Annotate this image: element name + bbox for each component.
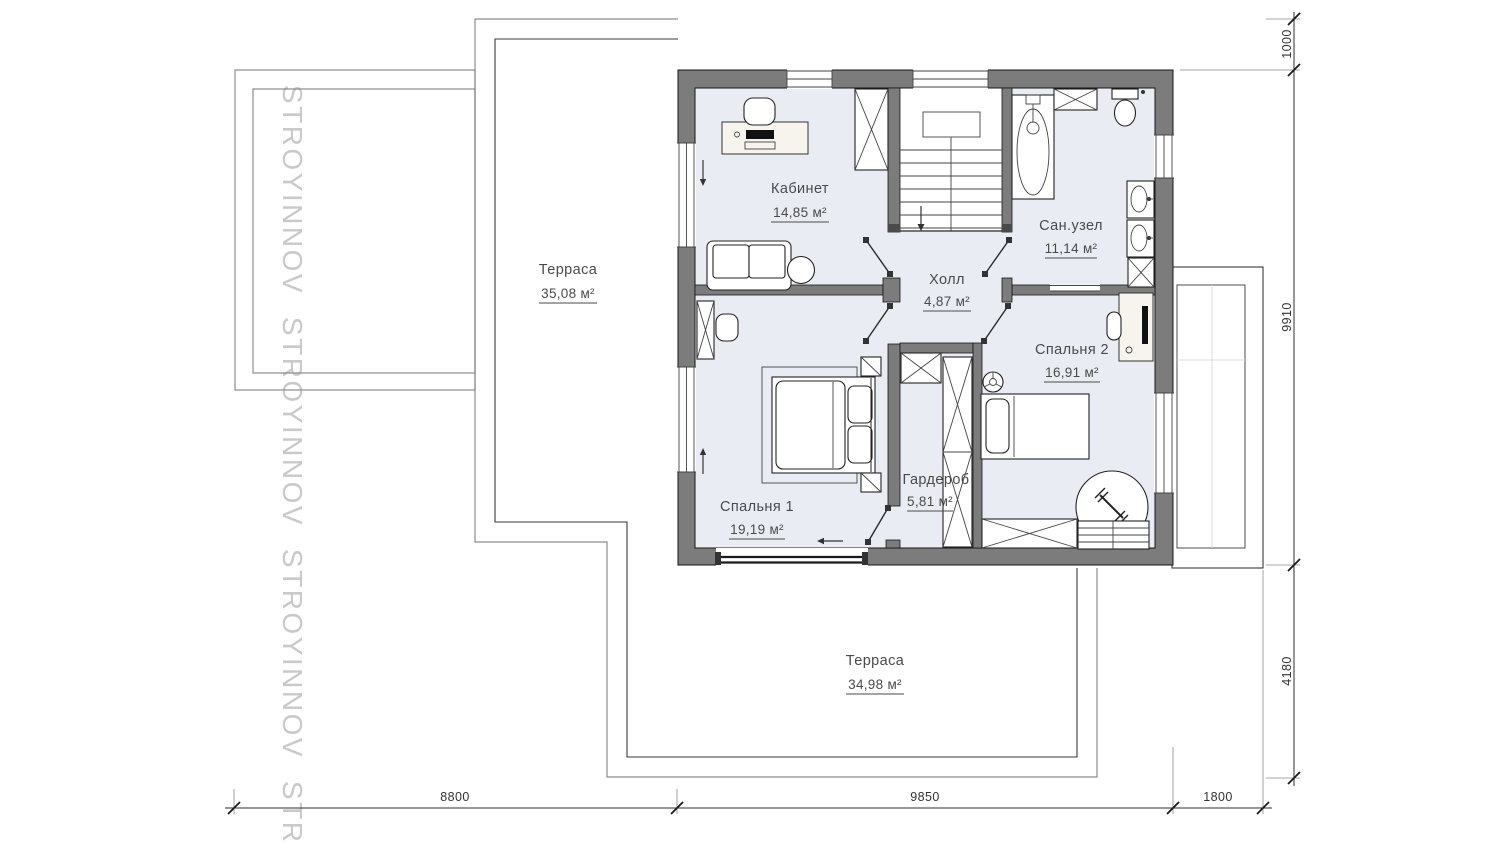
desk-symbol	[722, 122, 808, 154]
nightstand-symbol	[861, 357, 881, 376]
wall-cap	[888, 224, 900, 232]
pillow-symbol	[986, 399, 1009, 453]
floor-plan-canvas: STROYINNOV STROYINNOV STROYINNOV STROYIN…	[0, 0, 1500, 844]
office-chair-symbol	[1107, 312, 1121, 340]
wall-office-stairs	[888, 88, 900, 232]
dimension-label-9850: 9850	[910, 790, 939, 804]
watermark: STROYINNOV STROYINNOV STROYINNOV STROYIN…	[277, 85, 308, 844]
nightstand-symbol	[861, 473, 881, 492]
wall-bedroom1-wardrobe	[888, 344, 900, 506]
window-bathroom-right	[1154, 135, 1174, 178]
stool-symbol	[716, 314, 738, 341]
window-office-left	[677, 143, 696, 247]
bathroom-threshold	[1050, 285, 1100, 292]
room-area: 35,08 м²	[541, 286, 595, 301]
pillow-symbol	[848, 386, 872, 423]
dimension-label-9910: 9910	[1280, 302, 1294, 331]
window-bedroom2-right	[1154, 393, 1174, 493]
room-area: 14,85 м²	[773, 205, 827, 220]
balcony	[1172, 267, 1263, 568]
room-area: 34,98 м²	[848, 677, 902, 692]
room-area: 4,87 м²	[924, 294, 970, 309]
building	[677, 69, 1174, 566]
bench-rack-symbol	[1078, 521, 1149, 549]
bathtub-symbol	[1012, 95, 1054, 199]
watermark-text: STROYINNOV	[277, 85, 308, 295]
double-bed-symbol	[772, 377, 875, 473]
room-area: 11,14 м²	[1045, 241, 1098, 256]
wall-stub-wardrobe	[886, 540, 900, 548]
sofa-symbol	[707, 241, 791, 290]
room-name: Спальня 2	[1035, 342, 1109, 358]
sink-symbol	[1127, 220, 1154, 257]
low-dresser-symbol	[982, 519, 1077, 548]
room-name: Терраса	[539, 262, 598, 278]
balcony-outline-inner	[1177, 285, 1245, 548]
room-label-terrace-left: Терраса 35,08 м²	[539, 262, 598, 303]
room-name: Сан.узел	[1039, 218, 1103, 234]
desk-symbol	[1119, 293, 1153, 361]
wall-post-east	[1002, 278, 1012, 302]
window-bedroom1-panoramic	[715, 548, 868, 566]
dimension-label-8800: 8800	[440, 790, 469, 804]
wall-post-west	[883, 278, 900, 302]
room-area: 5,81 м²	[907, 494, 953, 509]
dimension-label-1800: 1800	[1203, 790, 1232, 804]
office-chair-symbol	[744, 98, 775, 125]
watermark-text: STROYINNOV	[277, 317, 308, 527]
side-table-symbol	[788, 257, 815, 284]
watermark-text: STROYINNOV	[277, 781, 308, 844]
room-label-terrace-bottom: Терраса 34,98 м²	[846, 653, 905, 694]
wall-cap	[1002, 224, 1012, 232]
room-name: Кабинет	[771, 181, 829, 197]
wardrobe-tall-cabinet-symbol	[943, 357, 972, 547]
pillow-symbol	[848, 426, 872, 463]
watermark-text: STROYINNOV	[277, 549, 308, 759]
room-name: Гардероб	[903, 472, 970, 488]
room-name: Терраса	[846, 653, 905, 669]
wardrobe-cabinet-symbol	[901, 353, 941, 383]
room-area: 16,91 м²	[1045, 365, 1099, 380]
room-name: Спальня 1	[720, 499, 794, 515]
dimension-label-4180: 4180	[1280, 656, 1294, 685]
floor-plan-page: STROYINNOV STROYINNOV STROYINNOV STROYIN…	[0, 0, 1500, 844]
wall-stairs-bathroom	[1002, 88, 1012, 232]
window-stairs-top	[913, 69, 988, 89]
fan-symbol	[983, 372, 1003, 392]
window-bedroom1-left	[677, 367, 696, 472]
laundry-cabinet-symbol	[1128, 258, 1154, 287]
sink-symbol	[1127, 181, 1154, 218]
wall-hall-wardrobe	[900, 343, 973, 353]
dresser-symbol	[697, 301, 714, 359]
bathroom-cabinet-symbol	[1054, 89, 1097, 110]
balcony-outline-outer	[1172, 267, 1263, 568]
single-bed-symbol	[981, 394, 1089, 459]
window-office-top	[787, 69, 832, 89]
office-closet-symbol	[855, 89, 888, 170]
room-name: Холл	[929, 272, 965, 288]
lower-roof-outline-outer	[235, 70, 475, 390]
room-area: 19,19 м²	[730, 522, 784, 537]
dimension-label-1000: 1000	[1280, 29, 1294, 58]
